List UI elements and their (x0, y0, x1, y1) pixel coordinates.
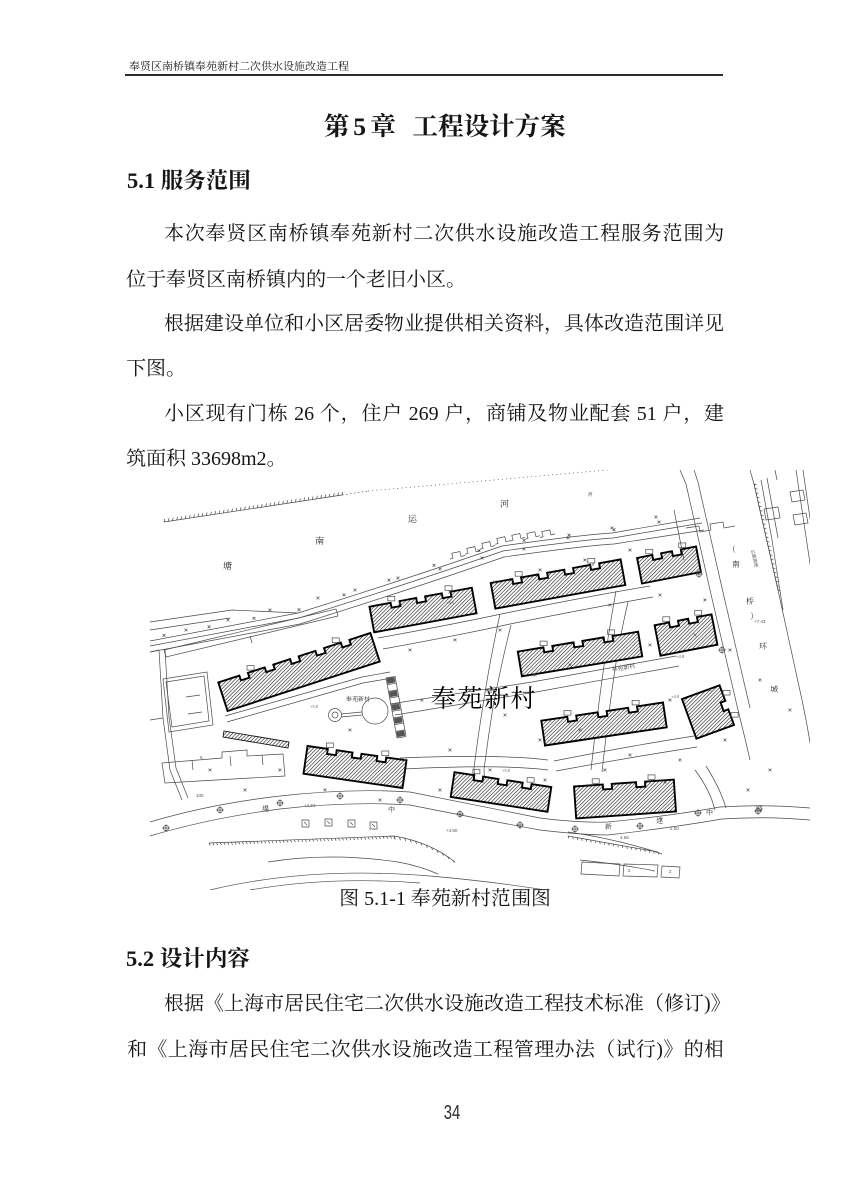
svg-text:+4.64: +4.64 (304, 803, 316, 808)
svg-text:河: 河 (500, 499, 509, 509)
svg-text:公路用地: 公路用地 (749, 549, 760, 569)
svg-text:+4.8: +4.8 (671, 694, 680, 699)
svg-text:堤: 堤 (262, 805, 269, 813)
svg-text:南: 南 (732, 560, 740, 569)
svg-text:环: 环 (759, 642, 767, 651)
svg-text:中: 中 (706, 809, 714, 817)
svg-text:桥: 桥 (746, 597, 754, 606)
svg-text:奉苑新村: 奉苑新村 (610, 662, 636, 675)
svg-text:新: 新 (604, 822, 612, 831)
svg-text:+5.0: +5.0 (310, 704, 319, 709)
svg-text:建: 建 (656, 817, 663, 825)
svg-text:2: 2 (628, 868, 631, 873)
svg-text:塘: 塘 (223, 561, 232, 571)
svg-text:+5.0: +5.0 (502, 768, 511, 773)
svg-text:城: 城 (770, 685, 778, 694)
svg-text:2.50: 2.50 (670, 826, 679, 831)
svg-text:+4.5: +4.5 (446, 600, 455, 605)
svg-text:2: 2 (669, 869, 672, 874)
svg-text:南: 南 (315, 536, 324, 546)
svg-text:运: 运 (408, 514, 417, 524)
svg-text:+4.8: +4.8 (676, 654, 685, 659)
svg-text:+4.80: +4.80 (446, 828, 458, 833)
svg-text:路: 路 (755, 805, 763, 813)
svg-text:中: 中 (388, 806, 396, 814)
svg-text:+5.0: +5.0 (484, 689, 493, 694)
svg-text:4.58: 4.58 (620, 835, 629, 840)
svg-text:6: 6 (200, 755, 203, 760)
svg-text:+7.43: +7.43 (754, 619, 766, 624)
svg-text:河: 河 (587, 492, 593, 497)
svg-text:奉苑新村: 奉苑新村 (345, 695, 370, 703)
svg-text:（: （ (728, 545, 736, 554)
svg-text:100: 100 (196, 793, 204, 798)
